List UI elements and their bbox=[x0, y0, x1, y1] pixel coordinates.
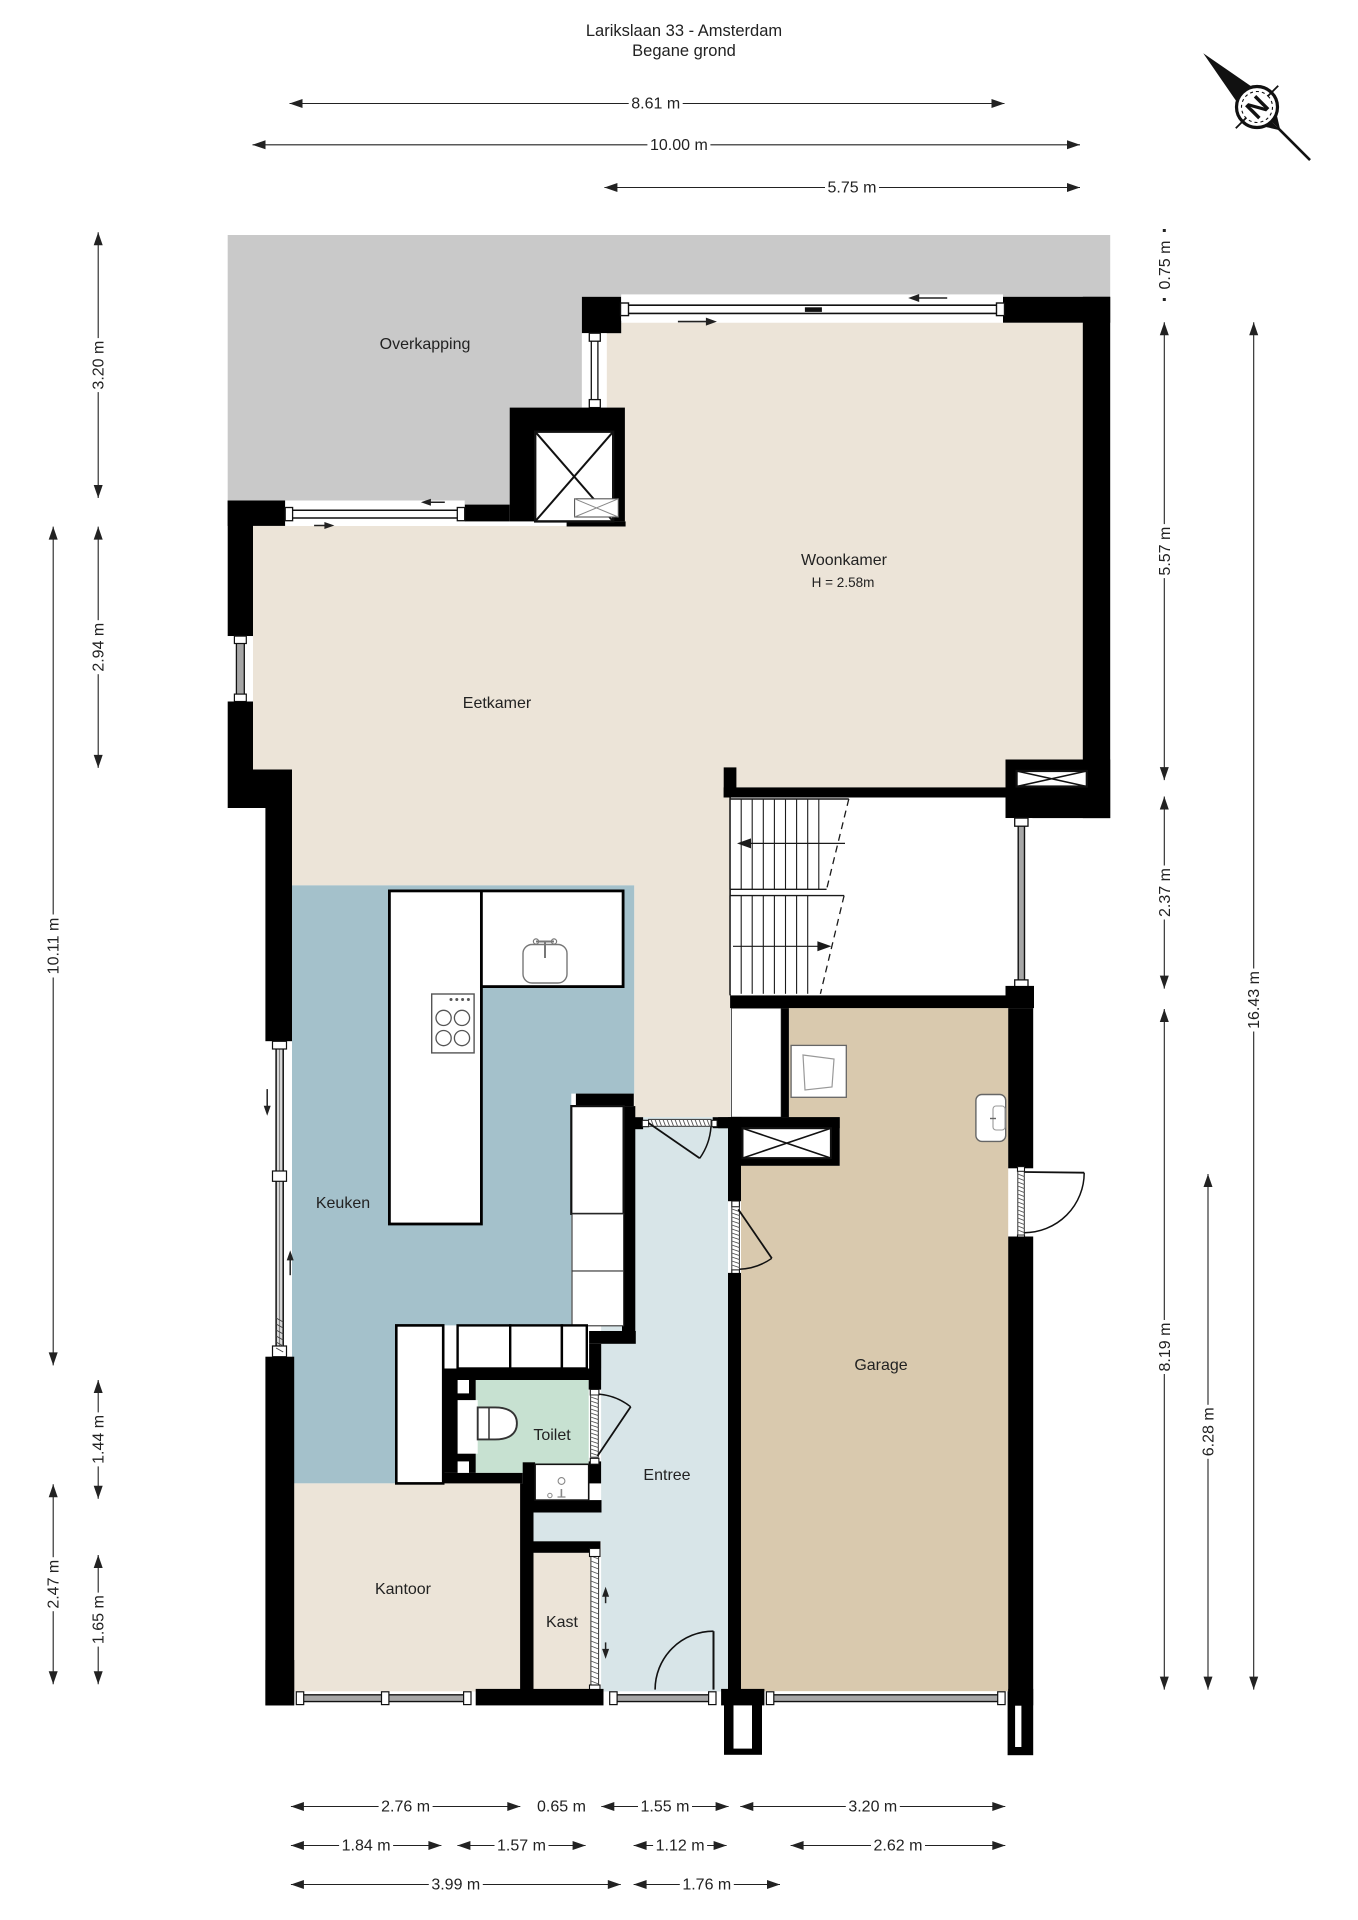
svg-text:H = 2.58m: H = 2.58m bbox=[812, 575, 875, 590]
svg-text:10.11 m: 10.11 m bbox=[46, 918, 63, 975]
svg-text:Toilet: Toilet bbox=[533, 1427, 571, 1444]
svg-text:8.61 m: 8.61 m bbox=[631, 96, 680, 113]
svg-text:Eetkamer: Eetkamer bbox=[463, 695, 532, 712]
svg-text:2.76 m: 2.76 m bbox=[381, 1799, 430, 1816]
svg-text:1.12 m: 1.12 m bbox=[656, 1838, 705, 1855]
svg-text:1.76 m: 1.76 m bbox=[682, 1877, 731, 1894]
svg-text:1.44 m: 1.44 m bbox=[91, 1415, 108, 1464]
svg-text:Garage: Garage bbox=[854, 1357, 907, 1374]
svg-text:1.55 m: 1.55 m bbox=[641, 1799, 690, 1816]
svg-text:Kast: Kast bbox=[546, 1614, 579, 1631]
svg-text:3.20 m: 3.20 m bbox=[848, 1799, 897, 1816]
svg-text:1.57 m: 1.57 m bbox=[497, 1838, 546, 1855]
svg-text:Overkapping: Overkapping bbox=[380, 336, 471, 353]
svg-text:2.62 m: 2.62 m bbox=[874, 1838, 923, 1855]
svg-text:1.84 m: 1.84 m bbox=[342, 1838, 391, 1855]
svg-text:Begane grond: Begane grond bbox=[632, 42, 736, 60]
svg-text:Kantoor: Kantoor bbox=[375, 1581, 432, 1598]
svg-text:Larikslaan 33 - Amsterdam: Larikslaan 33 - Amsterdam bbox=[586, 22, 782, 40]
svg-text:Keuken: Keuken bbox=[316, 1195, 370, 1212]
svg-text:3.99 m: 3.99 m bbox=[431, 1877, 480, 1894]
svg-text:Woonkamer: Woonkamer bbox=[801, 552, 888, 569]
svg-text:10.00 m: 10.00 m bbox=[650, 137, 708, 154]
svg-text:2.37 m: 2.37 m bbox=[1157, 868, 1174, 917]
svg-text:3.20 m: 3.20 m bbox=[91, 341, 108, 390]
svg-text:5.57 m: 5.57 m bbox=[1157, 527, 1174, 576]
svg-text:2.47 m: 2.47 m bbox=[46, 1560, 63, 1609]
svg-text:1.65 m: 1.65 m bbox=[91, 1595, 108, 1644]
svg-text:5.75 m: 5.75 m bbox=[828, 180, 877, 197]
svg-text:Entree: Entree bbox=[643, 1467, 690, 1484]
svg-text:2.94 m: 2.94 m bbox=[91, 623, 108, 672]
svg-text:8.19 m: 8.19 m bbox=[1157, 1323, 1174, 1372]
svg-text:16.43 m: 16.43 m bbox=[1246, 971, 1263, 1029]
svg-text:0.75 m: 0.75 m bbox=[1157, 241, 1174, 290]
svg-text:6.28 m: 6.28 m bbox=[1201, 1407, 1218, 1456]
svg-text:0.65 m: 0.65 m bbox=[537, 1799, 586, 1816]
